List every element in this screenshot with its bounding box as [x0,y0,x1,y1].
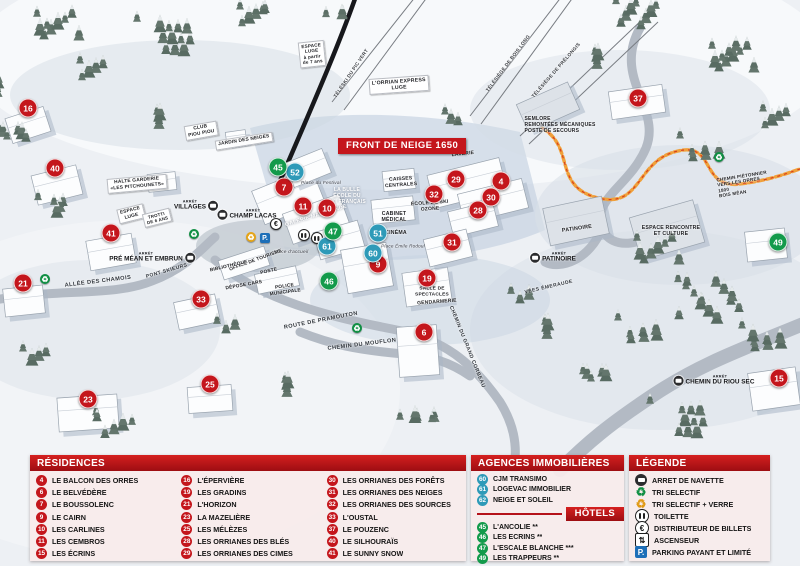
legende-item: PARKING PAYANT ET LIMITÉ [629,546,770,558]
legend-item-label: L'OUSTAL [343,513,378,522]
elevator-icon [635,533,649,547]
legende-item-label: TRI SELECTIF [652,488,700,497]
marker-number-badge: 23 [181,512,192,523]
legend-item: 29 LES ORRIANES DES CIMES [175,548,320,560]
map-marker-19[interactable]: 19 [418,269,437,288]
legend-item-label: LES ORRIANES DES NEIGES [343,488,443,497]
legend-item-label: LES ORRIANES DES CIMES [197,549,292,558]
marker-number-badge: 41 [327,548,338,559]
legend-item: 49 LES TRAPPEURS ** [471,554,624,565]
legend-item-label: LOGEVAC IMMOBILIER [493,486,571,493]
legend-item-label: LES TRAPPEURS ** [493,555,559,562]
legend-item: 16 L'ÉPERVIÈRE [175,474,320,486]
map-marker-32[interactable]: 32 [425,185,444,204]
marker-number-badge: 62 [477,495,488,506]
marker-number-badge: 6 [36,487,47,498]
legend-item: 23 LA MAZELIÈRE [175,511,320,523]
map-marker-41[interactable]: 41 [102,224,121,243]
hotels-header: HÔTELS [566,507,624,521]
legend-item: 33 L'OUSTAL [321,511,466,523]
hotels-header-bar: HÔTELS [477,507,624,521]
map-marker-11[interactable]: 11 [294,197,313,216]
legend-item-label: LE CAIRN [52,513,86,522]
legend-item-label: LES ECRINS ** [493,534,542,541]
legende-item: TRI SELECTIF + VERRE [629,498,770,510]
map-marker-52[interactable]: 52 [286,163,305,182]
legend-item: 25 LES MÉLÈZES [175,523,320,535]
marker-number-badge: 32 [327,499,338,510]
resort-map: ESPACE LUGE à partir de 7 ansL'ORRIAN EX… [0,0,800,566]
marker-number-badge: 28 [181,536,192,547]
residences-col-2: 16 L'ÉPERVIÈRE 19 LES GRADINS 21 L'HORIZ… [175,474,320,560]
map-marker-25[interactable]: 25 [201,375,220,394]
legend-item-label: LA MAZELIÈRE [197,513,250,522]
marker-number-badge: 30 [327,475,338,486]
marker-number-badge: 46 [477,532,488,543]
legend-item: 46 LES ECRINS ** [471,532,624,543]
legende-item-label: TRI SELECTIF + VERRE [652,500,733,509]
legende-header: LÉGENDE [629,455,770,471]
legend-item: 11 LES CEMBROS [30,535,175,547]
legend-item: 31 LES ORRIANES DES NEIGES [321,486,466,498]
residences-header: RÉSIDENCES [30,455,466,471]
legend-item-label: L'HORIZON [197,500,236,509]
marker-number-badge: 16 [181,475,192,486]
legend-item-label: LES ORRIANES DES SOURCES [343,500,451,509]
legend-item-label: LE BOUSSOLENC [52,500,114,509]
front-de-neige-banner: FRONT DE NEIGE 1650 [338,138,466,154]
marker-number-badge: 19 [181,487,192,498]
marker-number-badge: 9 [36,512,47,523]
legende-item: DISTRIBUTEUR DE BILLETS [629,522,770,534]
marker-number-badge: 37 [327,524,338,535]
hotels-divider [477,513,562,515]
panel-agences-hotels: AGENCES IMMOBILIÈRES 60 CJM TRANSIMO 61 … [471,455,624,561]
agences-list: 60 CJM TRANSIMO 61 LOGEVAC IMMOBILIER 62… [471,471,624,506]
map-marker-49[interactable]: 49 [769,233,788,252]
map-marker-10[interactable]: 10 [318,199,337,218]
marker-number-badge: 10 [36,524,47,535]
legende-list: ARRET DE NAVETTE TRI SELECTIF TRI SELECT… [629,471,770,558]
legende-item-label: ASCENSEUR [654,536,699,545]
legend-item: 41 LE SUNNY SNOW [321,548,466,560]
legend-item-label: LES ÉCRINS [52,549,95,558]
legend-item-label: L'ESCALE BLANCHE *** [493,545,574,552]
legend-item: 30 LES ORRIANES DES FORÊTS [321,474,466,486]
marker-number-badge: 29 [181,548,192,559]
marker-number-badge: 25 [181,524,192,535]
legend-item-label: LE BELVÉDÈRE [52,488,107,497]
legend-item: 19 LES GRADINS [175,486,320,498]
legend-item: 60 CJM TRANSIMO [471,474,624,485]
marker-number-badge: 7 [36,499,47,510]
legend-item: 21 L'HORIZON [175,499,320,511]
marker-number-badge: 31 [327,487,338,498]
map-marker-40[interactable]: 40 [46,159,65,178]
legend-item-label: LES MÉLÈZES [197,525,247,534]
marker-number-badge: 60 [477,474,488,485]
marker-number-badge: 40 [327,536,338,547]
legend-item: 62 NEIGE ET SOLEIL [471,495,624,506]
hotels-list: 45 L'ANCOLIE ** 46 LES ECRINS ** 47 L'ES… [471,522,624,564]
legend-item-label: NEIGE ET SOLEIL [493,497,553,504]
panel-residences: RÉSIDENCES 4 LE BALCON DES ORRES 6 LE BE… [30,455,466,561]
panel-legende: LÉGENDE ARRET DE NAVETTE TRI SELECTIF TR… [629,455,770,561]
legend-item: 32 LES ORRIANES DES SOURCES [321,499,466,511]
legend-item-label: LES ORRIANES DES FORÊTS [343,476,445,485]
legend-item-label: LES GRADINS [197,488,246,497]
map-marker-33[interactable]: 33 [192,290,211,309]
legend-item: 10 LES CARLINES [30,523,175,535]
legend-item-label: LE SILHOURAÏS [343,537,399,546]
marker-number-badge: 4 [36,475,47,486]
map-marker-45[interactable]: 45 [269,158,288,177]
legend-item: 28 LES ORRIANES DES BLÉS [175,535,320,547]
map-marker-46[interactable]: 46 [320,272,339,291]
map-marker-60[interactable]: 60 [364,244,383,263]
marker-number-badge: 47 [477,543,488,554]
legend-item: 7 LE BOUSSOLENC [30,499,175,511]
legend-item-label: LE POUZENC [343,525,389,534]
legend-item-label: LE SUNNY SNOW [343,549,404,558]
map-marker-15[interactable]: 15 [770,369,789,388]
legende-item: TOILETTE [629,510,770,522]
map-marker-51[interactable]: 51 [369,224,388,243]
residences-col-1: 4 LE BALCON DES ORRES 6 LE BELVÉDÈRE 7 L… [30,474,175,560]
parking-icon [635,546,647,558]
legende-item-label: TOILETTE [654,512,689,521]
agences-header: AGENCES IMMOBILIÈRES [471,455,624,471]
legend-item-label: L'ANCOLIE ** [493,524,538,531]
legend-item: 61 LOGEVAC IMMOBILIER [471,485,624,496]
map-marker-28[interactable]: 28 [469,201,488,220]
map-marker-47[interactable]: 47 [324,222,343,241]
legend-item-label: LE BALCON DES ORRES [52,476,138,485]
legende-item: ASCENSEUR [629,534,770,546]
residences-col-3: 30 LES ORRIANES DES FORÊTS 31 LES ORRIAN… [321,474,466,560]
legend-item: 37 LE POUZENC [321,523,466,535]
map-marker-16[interactable]: 16 [19,99,38,118]
marker-number-badge: 33 [327,512,338,523]
marker-number-badge: 61 [477,484,488,495]
legend-item: 15 LES ÉCRINS [30,548,175,560]
legend-item: 4 LE BALCON DES ORRES [30,474,175,486]
legend-item-label: LES CEMBROS [52,537,105,546]
marker-number-badge: 15 [36,548,47,559]
legend-item: 47 L'ESCALE BLANCHE *** [471,543,624,554]
legende-item-label: PARKING PAYANT ET LIMITÉ [652,548,751,557]
map-marker-21[interactable]: 21 [14,274,33,293]
marker-number-badge: 11 [36,536,47,547]
marker-number-badge: 49 [477,553,488,564]
legend-item: 45 L'ANCOLIE ** [471,522,624,533]
legend-item: 9 LE CAIRN [30,511,175,523]
legend-item-label: CJM TRANSIMO [493,476,547,483]
legend-item: 6 LE BELVÉDÈRE [30,486,175,498]
legende-item: TRI SELECTIF [629,486,770,498]
legend-item-label: L'ÉPERVIÈRE [197,476,244,485]
legende-item: ARRET DE NAVETTE [629,474,770,486]
marker-number-badge: 45 [477,522,488,533]
map-marker-31[interactable]: 31 [443,233,462,252]
marker-number-badge: 21 [181,499,192,510]
map-marker-37[interactable]: 37 [629,89,648,108]
legend-item-label: LES CARLINES [52,525,105,534]
map-marker-6[interactable]: 6 [415,323,434,342]
legend-item: 40 LE SILHOURAÏS [321,535,466,547]
legende-item-label: ARRET DE NAVETTE [652,476,724,485]
map-marker-29[interactable]: 29 [447,170,466,189]
map-marker-23[interactable]: 23 [79,390,98,409]
legend-item-label: LES ORRIANES DES BLÉS [197,537,289,546]
legende-item-label: DISTRIBUTEUR DE BILLETS [654,524,751,533]
